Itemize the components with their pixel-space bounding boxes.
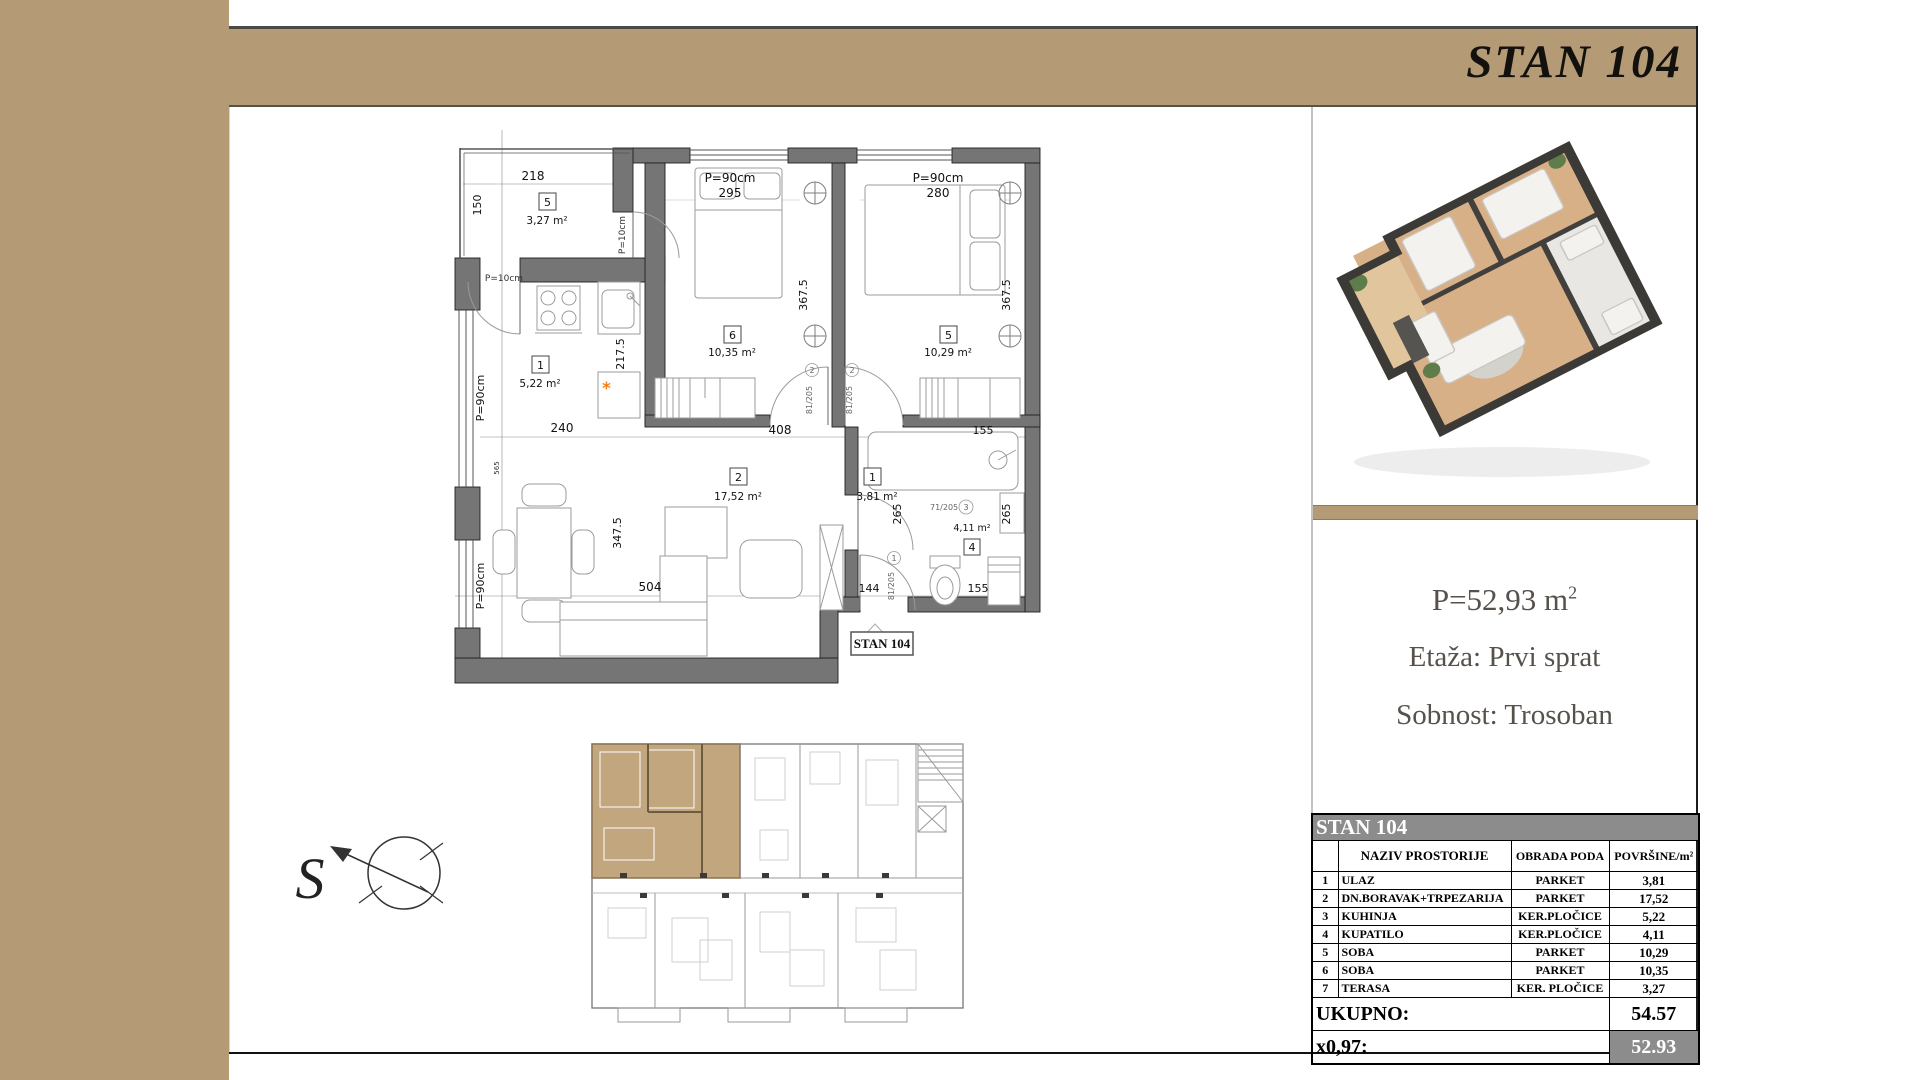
door-label-c: 81/205 [887,572,896,600]
room-area: 10,35 [1609,962,1699,980]
table-row: 4KUPATILOKER.PLOČICE4,11 [1312,926,1699,944]
rooms-table: STAN 104 NAZIV PROSTORIJE OBRADA PODA PO… [1311,813,1700,1065]
dim-p90-2: P=90cm [913,171,964,185]
main-drawing: * 218 150 P=90cm 295 P=90cm 280 367.5 36… [229,107,1311,1053]
svg-text:6: 6 [729,329,736,342]
dim-565: 565 [493,461,501,474]
apartment-rooms-type: Sobnost: Trosoban [1313,699,1696,732]
dim-280: 280 [927,186,950,200]
room-area: 4,11 [1609,926,1699,944]
stan-marker-label: STAN 104 [854,636,911,651]
render-shadow [1354,447,1650,477]
room-area: 10,29 [1609,944,1699,962]
room-label-soba6: 6 10,35 m² [708,326,756,359]
dim-p90-l1: P=90cm [474,375,487,422]
svg-text:5,22 m²: 5,22 m² [519,378,560,390]
factor-value: 52.93 [1609,1031,1699,1065]
table-row: 2DN.BORAVAK+TRPEZARIJAPARKET17,52 [1312,890,1699,908]
svg-text:10,35 m²: 10,35 m² [708,347,756,359]
total-label: UKUPNO: [1312,998,1609,1031]
svg-text:1: 1 [537,359,544,372]
door-num-a: 2 [809,366,814,375]
svg-text:3,81 m²: 3,81 m² [856,491,897,503]
dim-504: 504 [639,580,662,594]
room-area: 3,81 [1609,872,1699,890]
floor-finish: KER.PLOČICE [1511,926,1609,944]
room-name: SOBA [1338,962,1511,980]
site-plan-highlighted-unit [592,744,740,878]
svg-text:10,29 m²: 10,29 m² [924,347,972,359]
room-area: 5,22 [1609,908,1699,926]
compass-arrowhead [330,846,352,862]
door-num-c: 1 [891,554,896,563]
svg-text:2: 2 [735,471,742,484]
dim-p90-l2: P=90cm [474,563,487,610]
left-accent-stripe [0,0,229,1080]
render-3d [1313,107,1698,505]
row-num: 6 [1312,962,1338,980]
table-row: 1ULAZPARKET3,81 [1312,872,1699,890]
table-row: 3KUHINJAKER.PLOČICE5,22 [1312,908,1699,926]
dim-408: 408 [769,423,792,437]
door-label-b: 81/205 [845,386,854,414]
table-title: STAN 104 [1312,814,1699,841]
dim-150: 150 [471,195,484,216]
title-banner: STAN 104 [229,26,1698,107]
boiler-asterisk: * [602,379,611,399]
furniture [493,168,1024,656]
floor-plan: * 218 150 P=90cm 295 P=90cm 280 367.5 36… [455,130,1040,683]
compass-arrow [344,853,428,892]
svg-text:4: 4 [969,541,976,554]
render-apartment [1335,147,1656,440]
row-num: 3 [1312,908,1338,926]
dim-3675-b: 367.5 [1000,279,1013,311]
room-label-soba5: 5 10,29 m² [924,326,972,359]
panel-separator-band [1313,505,1698,520]
svg-text:5: 5 [544,196,551,209]
row-num: 2 [1312,890,1338,908]
room-name: DN.BORAVAK+TRPEZARIJA [1338,890,1511,908]
dim-144: 144 [859,582,880,595]
row-num: 5 [1312,944,1338,962]
room-area: 3,27 [1609,980,1699,998]
door-num-d: 3 [963,503,968,512]
door-num-b: 2 [849,366,854,375]
apartment-floor: Etaža: Prvi sprat [1313,641,1696,674]
plan-sheet: { "title": "STAN 104", "panel": { "area_… [0,0,1920,1080]
area-superscript: 2 [1568,583,1577,603]
row-num: 4 [1312,926,1338,944]
svg-text:3,27 m²: 3,27 m² [526,215,567,227]
col-header-num [1312,841,1338,872]
page-title: STAN 104 [1466,35,1682,89]
svg-text:5: 5 [945,329,952,342]
room-name: SOBA [1338,944,1511,962]
row-num: 7 [1312,980,1338,998]
table-row: 6SOBAPARKET10,35 [1312,962,1699,980]
apartment-area: P=52,93 m2 [1313,582,1696,618]
floor-finish: PARKET [1511,944,1609,962]
total-value: 54.57 [1609,998,1699,1031]
dim-p10-a: P=10cm [618,216,628,254]
row-num: 1 [1312,872,1338,890]
door-label-a: 81/205 [805,386,814,414]
compass-south-letter: S [296,846,325,911]
door-label-d: 71/205 [930,503,958,512]
area-value: P=52,93 m [1432,582,1568,617]
dim-3475: 347.5 [611,517,624,549]
dim-155-top: 155 [973,424,994,437]
room-name: KUPATILO [1338,926,1511,944]
svg-text:4,11 m²: 4,11 m² [953,523,990,534]
floor-finish: PARKET [1511,962,1609,980]
room-label-kupatilo: 4,11 m² 4 [953,523,990,555]
floor-finish: KER. PLOČICE [1511,980,1609,998]
stan-marker: STAN 104 [851,624,913,655]
compass-ticks [359,843,443,903]
floor-finish: PARKET [1511,890,1609,908]
site-plan [592,744,963,1022]
room-name: ULAZ [1338,872,1511,890]
factor-label: x0,97: [1312,1031,1609,1065]
dim-265-a: 265 [891,504,904,525]
room-name: KUHINJA [1338,908,1511,926]
dim-2175: 217.5 [614,338,627,370]
floor-finish: KER.PLOČICE [1511,908,1609,926]
room-label-dnevni: 2 17,52 m² [714,468,762,503]
dim-240: 240 [551,421,574,435]
dim-218: 218 [522,169,545,183]
floor-finish: PARKET [1511,872,1609,890]
compass: S [296,837,444,911]
col-header-povrsine: POVRŠINE/m² [1609,841,1699,872]
col-header-obrada: OBRADA PODA [1511,841,1609,872]
dim-p10-b: P=10cm [485,274,523,284]
svg-text:17,52 m²: 17,52 m² [714,491,762,503]
dim-265-b: 265 [1000,504,1013,525]
dim-p90-1: P=90cm [705,171,756,185]
svg-text:1: 1 [869,471,876,484]
room-area: 17,52 [1609,890,1699,908]
room-name: TERASA [1338,980,1511,998]
col-header-naziv: NAZIV PROSTORIJE [1338,841,1511,872]
dim-3675-a: 367.5 [797,279,810,311]
dim-295: 295 [719,186,742,200]
dim-155-bot: 155 [968,582,989,595]
table-row: 7TERASAKER. PLOČICE3,27 [1312,980,1699,998]
table-row: 5SOBAPARKET10,29 [1312,944,1699,962]
room-label-terasa: 5 3,27 m² [526,193,567,227]
room-label-kuhinja: 1 5,22 m² [519,356,560,390]
